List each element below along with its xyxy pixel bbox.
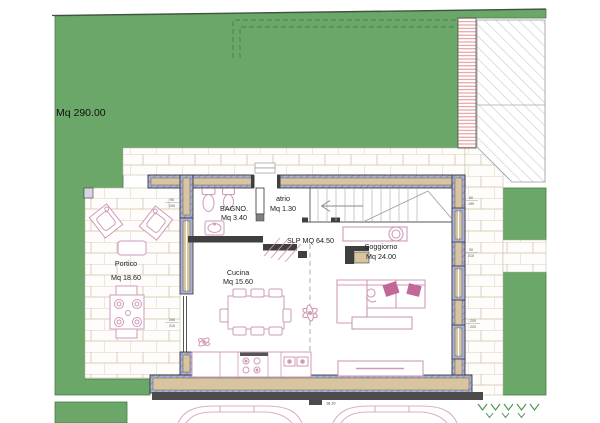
entrance-step bbox=[255, 163, 275, 168]
wall-bottom bbox=[150, 375, 472, 393]
dim-width: 200 bbox=[470, 319, 476, 323]
room-area-bagno: Mq 3.40 bbox=[221, 213, 247, 222]
dining-table-kitchen bbox=[220, 289, 291, 335]
window-right-1 bbox=[452, 208, 465, 242]
garden-patch-right-bottom bbox=[503, 272, 546, 395]
person-figure bbox=[367, 289, 375, 297]
garden-strip-bottom bbox=[55, 402, 127, 423]
room-area-soggiorno: Mq 24.00 bbox=[366, 252, 396, 261]
garden-patch-right-top bbox=[503, 188, 546, 240]
dim-height: 190 bbox=[169, 204, 175, 208]
tv-cabinet bbox=[338, 361, 423, 376]
dim-width: 90 bbox=[170, 198, 174, 202]
floor-plan-page: 18.10 Mq 290.00 BAGNO. Mq 3.40 atrio Mq … bbox=[0, 0, 600, 423]
wall-bagno-bottom bbox=[188, 236, 263, 243]
coffee-table bbox=[352, 317, 412, 329]
room-area-cucina: Mq 15.60 bbox=[223, 277, 253, 286]
room-area-portico: Mq 18.60 bbox=[111, 273, 141, 282]
dim-height: 210 bbox=[169, 324, 175, 328]
paving-right-strip bbox=[465, 148, 503, 395]
room-area-atrio: Mq 1.30 bbox=[270, 204, 296, 213]
dim-height: 190 bbox=[468, 202, 474, 206]
room-label-soggiorno: Soggiorno bbox=[365, 242, 398, 251]
toilet bbox=[202, 189, 215, 212]
stove-back bbox=[240, 353, 268, 357]
room-label-atrio: atrio bbox=[276, 194, 290, 203]
window-right-2 bbox=[452, 266, 465, 300]
garden-area-label: Mq 290.00 bbox=[56, 107, 106, 119]
paving-top-apron bbox=[123, 148, 465, 175]
floor-area-label: SLP MQ 64.50 bbox=[287, 236, 334, 245]
wall-left-lower bbox=[180, 352, 193, 375]
roof-overhang-hatch bbox=[477, 20, 545, 182]
kitchen-counter bbox=[192, 352, 311, 377]
window-left bbox=[180, 218, 193, 294]
window-right-3 bbox=[452, 325, 465, 359]
door-jamb bbox=[256, 214, 264, 221]
dim-height: 210 bbox=[468, 254, 474, 258]
dim-width: 200 bbox=[169, 318, 175, 322]
wall-left-upper bbox=[180, 175, 193, 218]
paving-right-path bbox=[503, 240, 546, 272]
room-label-cucina: Cucina bbox=[227, 268, 249, 277]
dim-width: 90 bbox=[469, 248, 473, 252]
wall-post bbox=[298, 251, 307, 258]
room-label-bagno: BAGNO. bbox=[220, 204, 248, 213]
retaining-wall-hatch bbox=[458, 18, 476, 148]
wall-post bbox=[331, 218, 340, 223]
dim-width: 80 bbox=[469, 196, 473, 200]
console-table bbox=[343, 227, 407, 241]
entrance-step bbox=[255, 168, 275, 173]
side-table bbox=[118, 241, 146, 255]
wall-top bbox=[148, 175, 465, 188]
floor-plan-canvas: 18.10 Mq 290.00 BAGNO. Mq 3.40 atrio Mq … bbox=[0, 0, 600, 423]
portico-column bbox=[84, 188, 93, 198]
partition-bagno-atrio bbox=[256, 188, 264, 214]
wall-post bbox=[302, 218, 308, 223]
sink bbox=[205, 221, 224, 235]
room-label-portico: Portico bbox=[115, 259, 137, 268]
overall-width-label: 18.10 bbox=[326, 402, 336, 406]
dim-height: 220 bbox=[470, 325, 476, 329]
